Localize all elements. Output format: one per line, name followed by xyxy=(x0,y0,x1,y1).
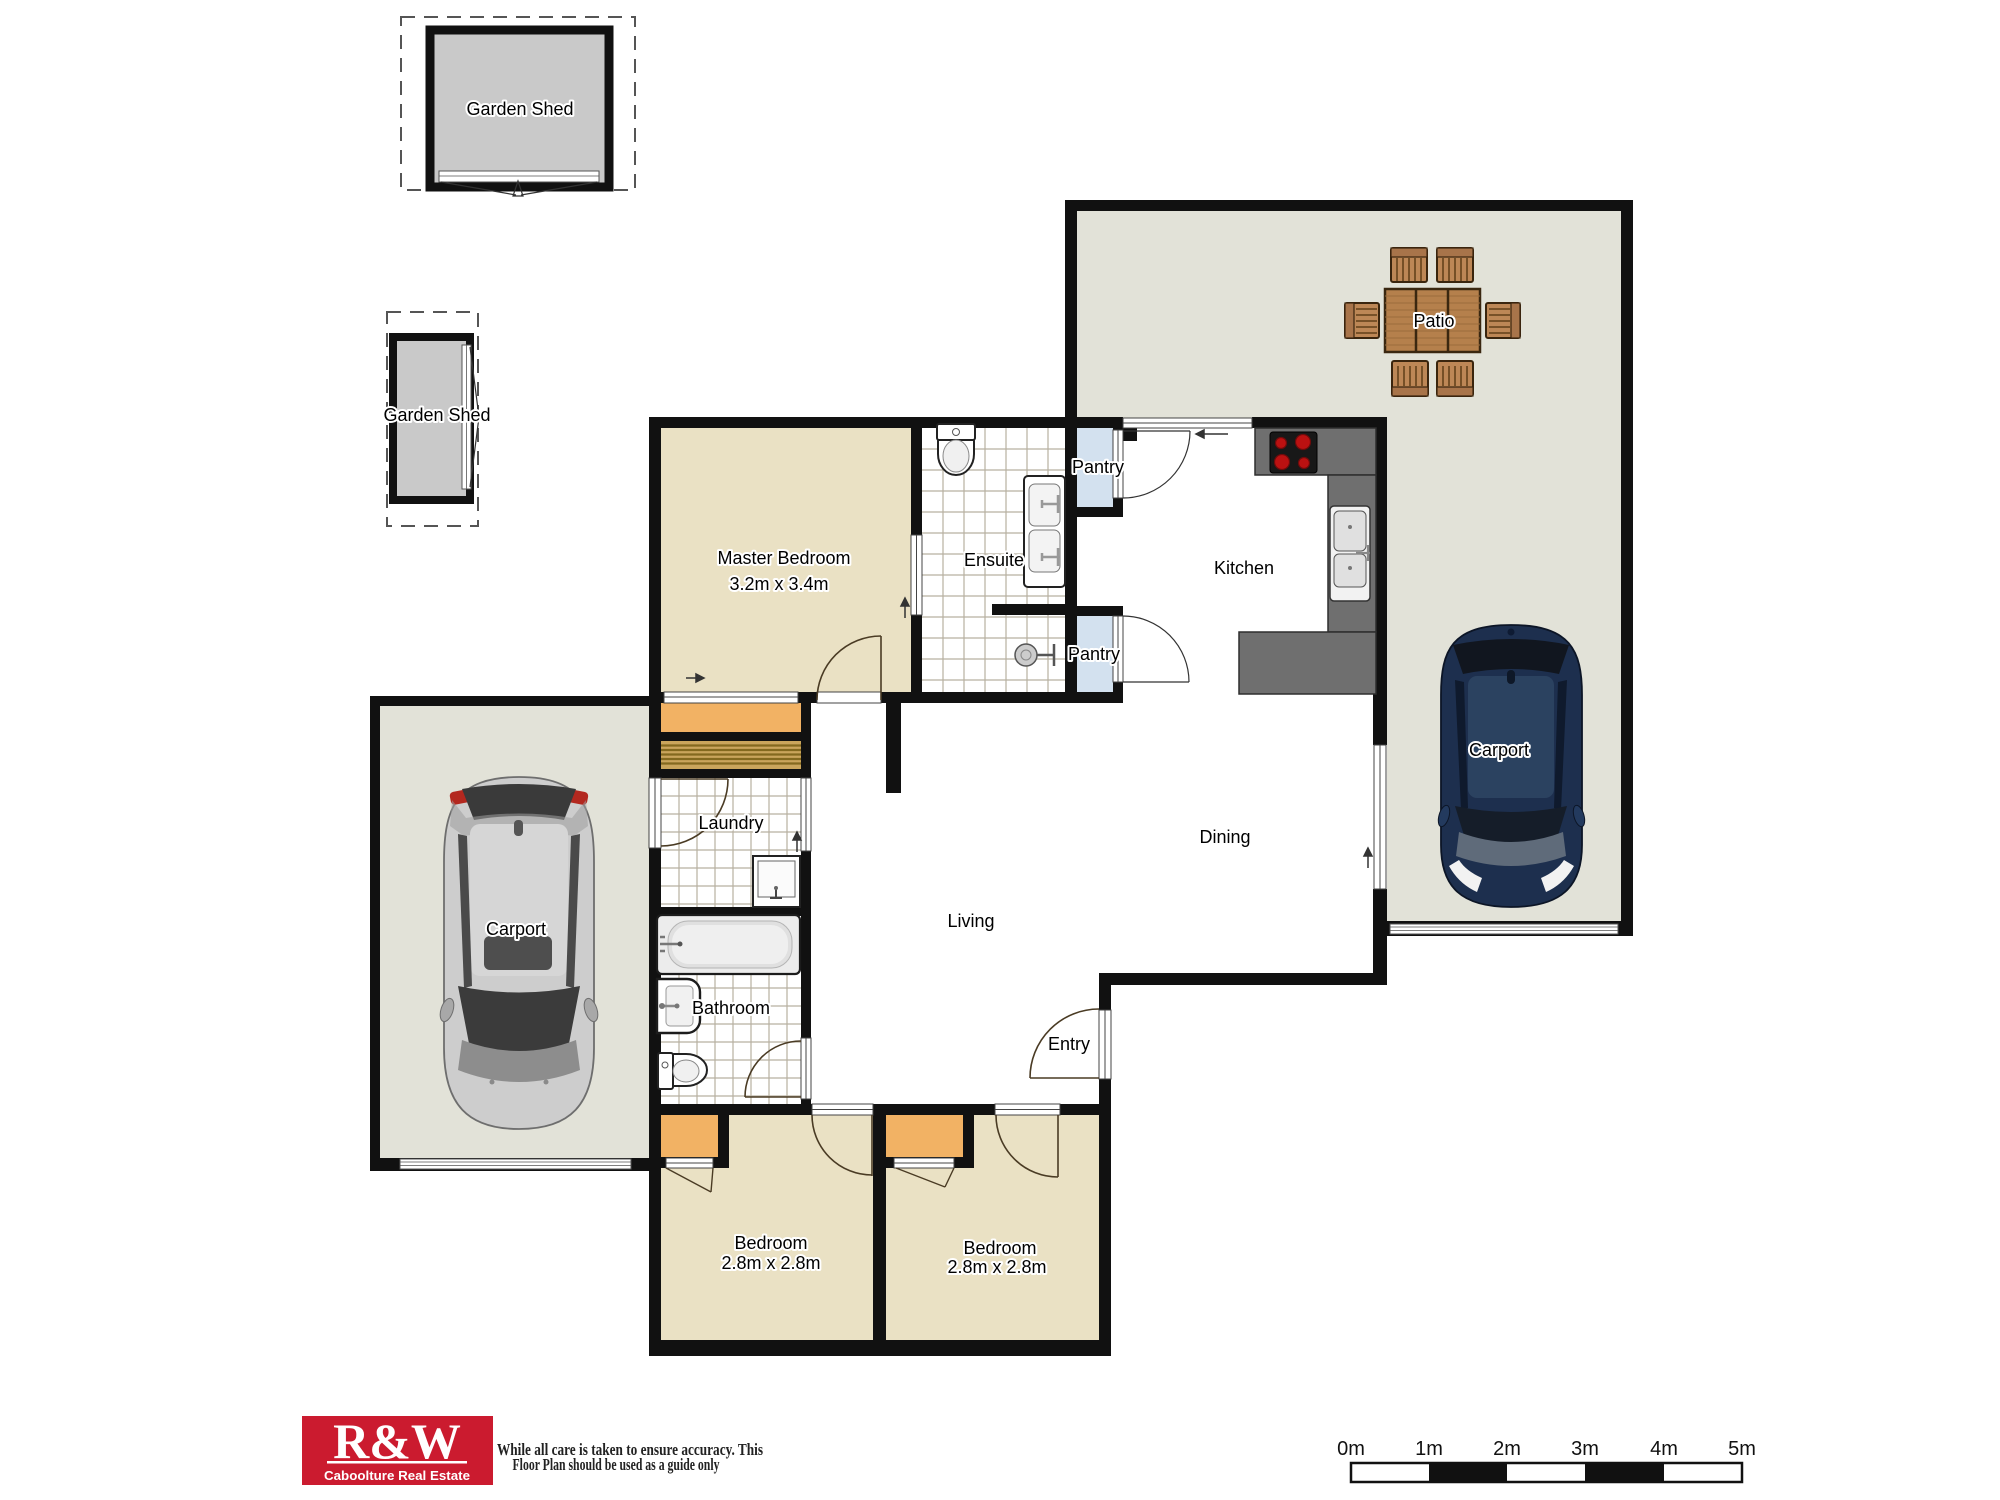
svg-text:Bedroom: Bedroom xyxy=(963,1238,1036,1258)
svg-text:Patio: Patio xyxy=(1413,311,1454,331)
svg-text:Living: Living xyxy=(947,911,994,931)
svg-text:1m: 1m xyxy=(1415,1438,1443,1460)
svg-text:Pantry: Pantry xyxy=(1072,457,1124,477)
svg-text:Garden Shed: Garden Shed xyxy=(466,99,573,119)
svg-text:Kitchen: Kitchen xyxy=(1214,558,1274,578)
svg-text:Caboolture Real Estate: Caboolture Real Estate xyxy=(324,1468,470,1483)
svg-text:Dining: Dining xyxy=(1199,827,1250,847)
svg-text:Laundry: Laundry xyxy=(698,813,763,833)
svg-text:Ensuite: Ensuite xyxy=(964,550,1024,570)
svg-text:R&W: R&W xyxy=(333,1413,461,1469)
svg-text:3.2m x 3.4m: 3.2m x 3.4m xyxy=(729,574,828,594)
svg-text:Carport: Carport xyxy=(486,919,546,939)
svg-text:Carport: Carport xyxy=(1469,740,1529,760)
svg-text:Bathroom: Bathroom xyxy=(692,998,770,1018)
svg-text:2.8m x 2.8m: 2.8m x 2.8m xyxy=(947,1257,1046,1277)
svg-text:3m: 3m xyxy=(1571,1438,1599,1460)
svg-text:0m: 0m xyxy=(1337,1438,1365,1460)
svg-text:2m: 2m xyxy=(1493,1438,1521,1460)
svg-text:Bedroom: Bedroom xyxy=(734,1233,807,1253)
svg-text:Floor Plan should be used as a: Floor Plan should be used as a guide onl… xyxy=(513,1455,720,1474)
svg-text:Entry: Entry xyxy=(1048,1034,1090,1054)
svg-text:Pantry: Pantry xyxy=(1068,644,1120,664)
svg-text:2.8m x 2.8m: 2.8m x 2.8m xyxy=(721,1253,820,1273)
svg-text:5m: 5m xyxy=(1728,1438,1756,1460)
svg-text:4m: 4m xyxy=(1650,1438,1678,1460)
svg-text:Master Bedroom: Master Bedroom xyxy=(717,548,850,568)
svg-text:Garden Shed: Garden Shed xyxy=(383,405,490,425)
